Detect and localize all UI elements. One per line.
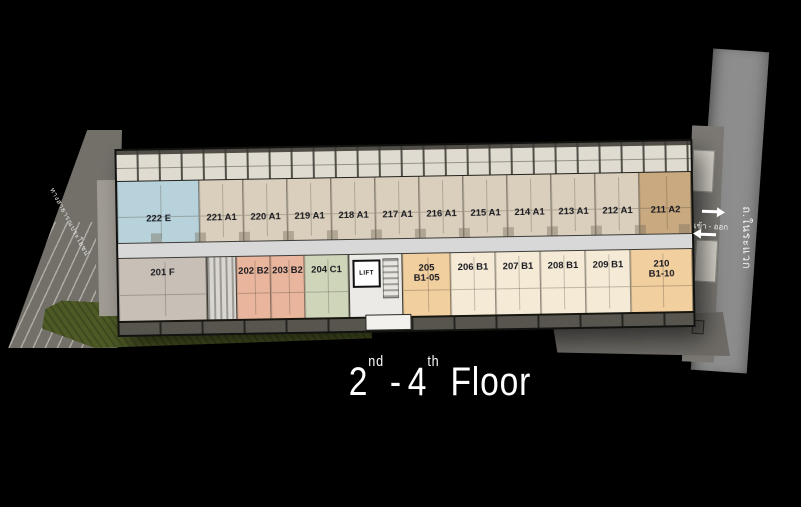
unit-label: 220 A1 [250, 212, 280, 223]
unit-label: 221 A1 [206, 213, 236, 224]
floor-title: 2nd-4thFloor [322, 360, 557, 405]
unit-label: 203 B2 [272, 266, 303, 277]
building: 222 E221 A1220 A1219 A1218 A1217 A1216 A… [116, 141, 693, 335]
exit-arrow-icon [701, 233, 716, 237]
unit-204-c1: 204 C1 [304, 255, 349, 318]
unit-label: 216 A1 [426, 209, 456, 220]
unit-label: 219 A1 [294, 211, 324, 222]
bottom-unit-row: 201 F202 B2203 B2204 C1LIFT205B1-05206 B… [118, 249, 693, 321]
lift: LIFT [352, 259, 380, 287]
unit-label-line2: B1-10 [649, 269, 675, 279]
unit-label: 217 A1 [382, 210, 412, 221]
lift-lobby: LIFT [348, 254, 403, 317]
unit-label-line2: B1-05 [414, 273, 440, 283]
unit-label: 213 A1 [558, 207, 588, 218]
unit-210-b1-10: 210B1-10 [630, 249, 693, 312]
unit-label: 211 A2 [651, 205, 681, 216]
unit-label: 212 A1 [602, 206, 632, 217]
floor-range-end-suffix: th [427, 353, 439, 370]
floor-range-start-suffix: nd [368, 353, 384, 370]
parking-stall [694, 239, 718, 282]
entry-exit-label: เข้า - ออก [686, 219, 737, 235]
floor-range-end: 4 [408, 360, 428, 404]
parking-stall [691, 149, 715, 192]
unit-201-f: 201 F [118, 257, 207, 321]
unit-205-b1-05: 205B1-05 [402, 253, 451, 316]
main-road-label: ถ.ในระแวก [738, 206, 756, 269]
unit-label: 208 B1 [548, 261, 579, 272]
unit-203-b2: 203 B2 [270, 256, 305, 319]
unit-label: 202 B2 [238, 266, 269, 277]
unit-206-b1: 206 B1 [450, 252, 496, 315]
floor-range-dash: - [390, 360, 402, 404]
unit-label: 201 F [150, 268, 174, 278]
lift-label: LIFT [359, 271, 374, 277]
entry-arrow-icon [702, 210, 717, 214]
unit-label: 214 A1 [514, 208, 544, 219]
unit-label: 222 E [146, 214, 171, 224]
floor-range-start: 2 [349, 360, 369, 404]
unit-label: 207 B1 [503, 262, 534, 273]
unit-label: 206 B1 [458, 263, 489, 274]
floor-plan-canvas: 222 E221 A1220 A1219 A1218 A1217 A1216 A… [0, 0, 801, 507]
south-entrance [365, 314, 411, 331]
staircase [206, 257, 237, 320]
unit-label: 215 A1 [470, 208, 500, 219]
top-unit-row: 222 E221 A1220 A1219 A1218 A1217 A1216 A… [117, 171, 692, 243]
unit-208-b1: 208 B1 [540, 251, 586, 314]
staircase [382, 258, 399, 298]
unit-202-b2: 202 B2 [236, 256, 271, 319]
unit-label: 204 C1 [311, 265, 342, 276]
unit-label: 209 B1 [593, 260, 624, 271]
unit-209-b1: 209 B1 [585, 250, 631, 313]
floor-word: Floor [450, 360, 531, 404]
unit-label: 218 A1 [338, 211, 368, 222]
unit-207-b1: 207 B1 [495, 252, 541, 315]
